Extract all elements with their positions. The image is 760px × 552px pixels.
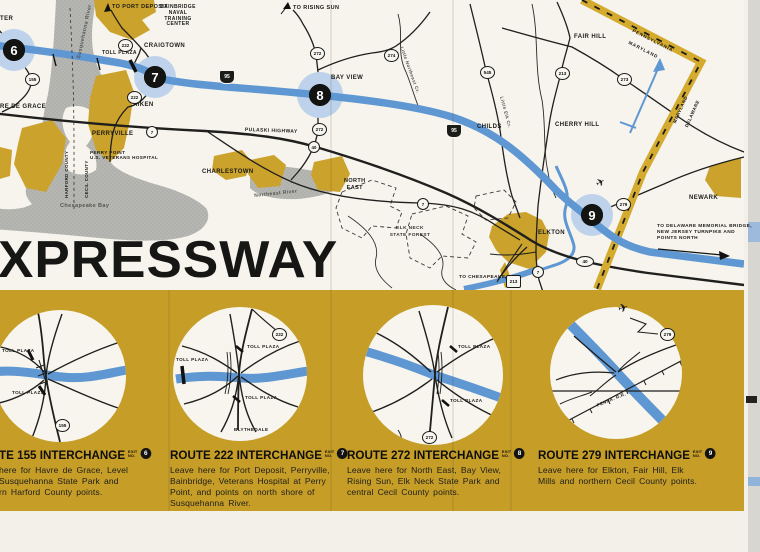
town-elkton: ELKTON (538, 230, 565, 237)
elk-neck-forest-label: ELK NECK STATE FOREST (388, 226, 432, 239)
edge-artifact-black (746, 396, 757, 403)
panel-body: here for Havre de Grace, Level Susquehan… (0, 465, 141, 498)
chesapeake-bay-label: Chesapeake Bay (60, 203, 109, 210)
town-bay-view: BAY VIEW (331, 75, 363, 82)
panel-route-279: ROUTE 279 INTERCHANGE EXIT NO. 9 Leave h… (538, 448, 708, 487)
exit-badge: 6 (140, 448, 151, 459)
us-40-shield: 40 (576, 256, 594, 267)
route-274-shield: 274 (384, 49, 399, 62)
page-margin (744, 0, 748, 552)
interchange-6-badge: 6 (3, 39, 25, 61)
route-222-shield: 222 (127, 91, 142, 104)
toll-plaza-label: TOLL PLAZA (102, 50, 137, 57)
panel-heading: ROUTE 272 INTERCHANGE EXIT NO. 8 (347, 448, 510, 462)
panel-body: Leave here for Port Deposit, Perryville,… (170, 465, 342, 509)
edge-artifact-blue-2 (748, 477, 760, 486)
sign-to-rising-sun: TO RISING SUN (293, 5, 339, 12)
folded-road-map: TER TO PORT DEPOSIT BAINBRIDGE NAVAL TRA… (0, 0, 760, 552)
route-7-shield: 7 (146, 126, 158, 138)
cecil-county-label: CECIL COUNTY (84, 160, 91, 198)
route-222-shield: 222 (272, 328, 287, 341)
panel-body: Leave here for Elkton, Fair Hill, Elk Mi… (538, 465, 708, 487)
route-272-shield: 272 (422, 431, 437, 444)
town-craigtown: CRAIGTOWN (144, 43, 185, 50)
perry-point-hospital-label: PERRY POINT U.S. VETERANS HOSPITAL (90, 150, 158, 161)
route-273-shield: 273 (617, 73, 632, 86)
panel-route-222: ROUTE 222 INTERCHANGE EXIT NO. 7 Leave h… (170, 448, 342, 509)
town-label-fragment: TER (0, 16, 13, 23)
route-213-shield: 213 (506, 275, 521, 288)
interchange-8-badge: 8 (309, 84, 331, 106)
town-childs: CHILDS (477, 124, 502, 131)
route-title: TE 155 INTERCHANGE (0, 448, 125, 462)
route-155-shield: 155 (55, 419, 70, 432)
toll-plaza-label: TOLL PLAZA (2, 348, 34, 355)
town-north-east: NORTH EAST (344, 178, 366, 191)
toll-plaza-label: TOLL PLAZA (450, 398, 482, 405)
exit-no-label: EXIT NO. (502, 450, 511, 458)
panel-route-272: ROUTE 272 INTERCHANGE EXIT NO. 8 Leave h… (347, 448, 515, 498)
panel-heading: ROUTE 222 INTERCHANGE EXIT NO. 7 (170, 448, 337, 462)
route-279-shield: 279 (660, 328, 675, 341)
bainbridge-naval-label: BAINBRIDGE NAVAL TRAINING CENTER (160, 5, 196, 28)
route-545-shield: 545 (480, 66, 495, 79)
route-7-shield: 7 (532, 266, 544, 278)
route-title: ROUTE 279 INTERCHANGE (538, 448, 690, 462)
town-newark: NEWARK (689, 195, 718, 202)
route-title: ROUTE 222 INTERCHANGE (170, 448, 322, 462)
route-272-shield: 272 (312, 123, 327, 136)
panel-route-155: TE 155 INTERCHANGE EXIT NO. 6 here for H… (0, 448, 141, 498)
interchange-9-badge: 9 (581, 204, 603, 226)
exit-no-label: EXIT NO. (325, 450, 334, 458)
town-cherry-hill: CHERRY HILL (555, 122, 599, 129)
exit-no-label: EXIT NO. (128, 450, 137, 458)
fold-crease (452, 0, 454, 511)
route-7-shield: 7 (417, 198, 429, 210)
toll-plaza-label: TOLL PLAZA (245, 395, 277, 402)
route-272-shield: 272 (310, 47, 325, 60)
panel-body: Leave here for North East, Bay View, Ris… (347, 465, 515, 498)
exit-no-label: EXIT NO. (693, 450, 702, 458)
interchange-7-badge: 7 (144, 66, 166, 88)
route-279-shield: 279 (616, 198, 631, 211)
panel-heading: TE 155 INTERCHANGE EXIT NO. 6 (0, 448, 137, 462)
expressway-title: XPRESSWAY (0, 230, 338, 290)
route-title: ROUTE 272 INTERCHANGE (347, 448, 499, 462)
town-havre-de-grace: RE DE GRACE (0, 104, 46, 111)
toll-plaza-label: TOLL PLAZA (247, 344, 279, 351)
town-blythedale: BLYTHEDALE (234, 427, 268, 434)
town-perryville: PERRYVILLE (92, 131, 133, 138)
town-charlestown: CHARLESTOWN (202, 169, 254, 176)
town-fair-hill: FAIR HILL (574, 34, 606, 41)
sign-to-delaware-bridge: TO DELAWARE MEMORIAL BRIDGE, NEW JERSEY … (657, 224, 752, 242)
route-155-shield: 155 (25, 73, 40, 86)
interstate-95-shield: 95 (446, 124, 462, 138)
toll-plaza-label: TOLL PLAZA (176, 357, 208, 364)
toll-plaza-label: TOLL PLAZA (12, 390, 44, 397)
page-edge-strip (748, 0, 760, 552)
toll-plaza-label: TOLL PLAZA (458, 344, 490, 351)
harford-county-label: HARFORD COUNTY (64, 151, 71, 198)
us-40-shield: 40 (308, 141, 320, 153)
route-222-shield: 222 (118, 39, 133, 52)
panel-heading: ROUTE 279 INTERCHANGE EXIT NO. 9 (538, 448, 703, 462)
interstate-95-shield: 95 (219, 70, 235, 84)
route-213-shield: 213 (555, 67, 570, 80)
